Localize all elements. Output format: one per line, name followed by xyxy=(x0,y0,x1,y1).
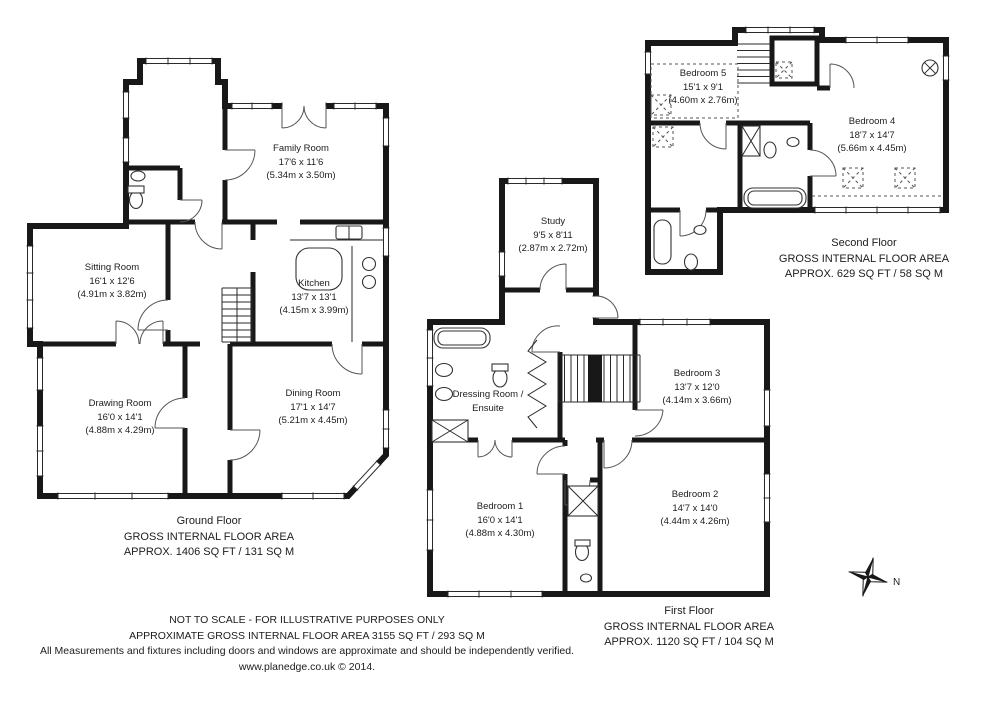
wardrobe-rail xyxy=(528,340,546,428)
basin xyxy=(436,388,453,401)
ground-floor-area-value: APPROX. 1406 SQ FT / 131 SQ M xyxy=(124,545,294,561)
ground-floor-title: Ground Floor xyxy=(124,514,294,530)
floorplan-drawing xyxy=(0,0,1000,707)
room-label-dressing-room: Dressing Room / Ensuite xyxy=(453,388,524,415)
floorplan-sheet: Family Room 17'6 x 11'6 (5.34m x 3.50m) … xyxy=(0,0,1000,707)
room-label-sitting-room: Sitting Room 16'1 x 12'6 (4.91m x 3.82m) xyxy=(77,261,146,302)
room-label-family-room: Family Room 17'6 x 11'6 (5.34m x 3.50m) xyxy=(266,142,335,183)
first-floor-stairs xyxy=(558,355,640,402)
wc-basin xyxy=(131,171,145,181)
basin xyxy=(694,226,706,235)
cistern xyxy=(575,540,590,546)
room-label-drawing-room: Drawing Room 16'0 x 14'1 (4.88m x 4.29m) xyxy=(85,397,154,438)
room-label-bedroom-1: Bedroom 1 16'0 x 14'1 (4.88m x 4.30m) xyxy=(465,500,534,541)
ground-floor-stairs xyxy=(222,288,252,342)
first-floor-fixtures xyxy=(432,328,598,582)
ground-floor-area-label: GROSS INTERNAL FLOOR AREA xyxy=(124,530,294,546)
disclaimer-line-3: All Measurements and fixtures including … xyxy=(40,644,574,660)
toilet xyxy=(685,254,698,270)
first-floor-title: First Floor xyxy=(604,604,774,620)
first-floor-area-label: GROSS INTERNAL FLOOR AREA xyxy=(604,620,774,636)
room-label-kitchen: Kitchen 13'7 x 13'1 (4.15m x 3.99m) xyxy=(279,277,348,318)
disclaimer-line-2: APPROXIMATE GROSS INTERNAL FLOOR AREA 31… xyxy=(40,629,574,645)
wc-toilet xyxy=(130,192,143,209)
basin xyxy=(436,364,453,377)
disclaimer-line-4: www.planedge.co.uk © 2014. xyxy=(40,660,574,676)
room-label-study: Study 9'5 x 8'11 (2.87m x 2.72m) xyxy=(518,215,587,256)
compass-icon xyxy=(844,553,893,602)
basin xyxy=(787,138,799,147)
disclaimer: NOT TO SCALE - FOR ILLUSTRATIVE PURPOSES… xyxy=(40,613,574,675)
wc-cistern xyxy=(128,186,144,193)
room-label-dining-room: Dining Room 17'1 x 14'7 (5.21m x 4.45m) xyxy=(278,387,347,428)
cistern xyxy=(492,364,508,371)
room-label-bedroom-4: Bedroom 4 18'7 x 14'7 (5.66m x 4.45m) xyxy=(837,115,906,156)
hob-ring xyxy=(363,276,376,289)
second-floor-title: Second Floor xyxy=(779,236,949,252)
basin xyxy=(581,574,592,582)
compass-north-label: N xyxy=(893,577,900,588)
room-label-bedroom-2: Bedroom 2 14'7 x 14'0 (4.44m x 4.26m) xyxy=(660,488,729,529)
toilet xyxy=(493,369,507,387)
hob-ring xyxy=(363,258,376,271)
second-floor-area-label: GROSS INTERNAL FLOOR AREA xyxy=(779,252,949,268)
bath xyxy=(654,220,671,264)
second-floor-area-value: APPROX. 629 SQ FT / 58 SQ M xyxy=(779,267,949,283)
first-floor-caption: First Floor GROSS INTERNAL FLOOR AREA AP… xyxy=(604,604,774,651)
toilet xyxy=(764,142,776,158)
stair-enclosure xyxy=(772,38,817,84)
room-label-bedroom-5: Bedroom 5 15'1 x 9'1 (4.60m x 2.76m) xyxy=(668,67,737,108)
first-floor-area-value: APPROX. 1120 SQ FT / 104 SQ M xyxy=(604,635,774,651)
ground-floor-caption: Ground Floor GROSS INTERNAL FLOOR AREA A… xyxy=(124,514,294,561)
disclaimer-line-1: NOT TO SCALE - FOR ILLUSTRATIVE PURPOSES… xyxy=(40,613,574,629)
stair-newel xyxy=(588,355,602,402)
room-label-bedroom-3: Bedroom 3 13'7 x 12'0 (4.14m x 3.66m) xyxy=(662,367,731,408)
second-floor-caption: Second Floor GROSS INTERNAL FLOOR AREA A… xyxy=(779,236,949,283)
